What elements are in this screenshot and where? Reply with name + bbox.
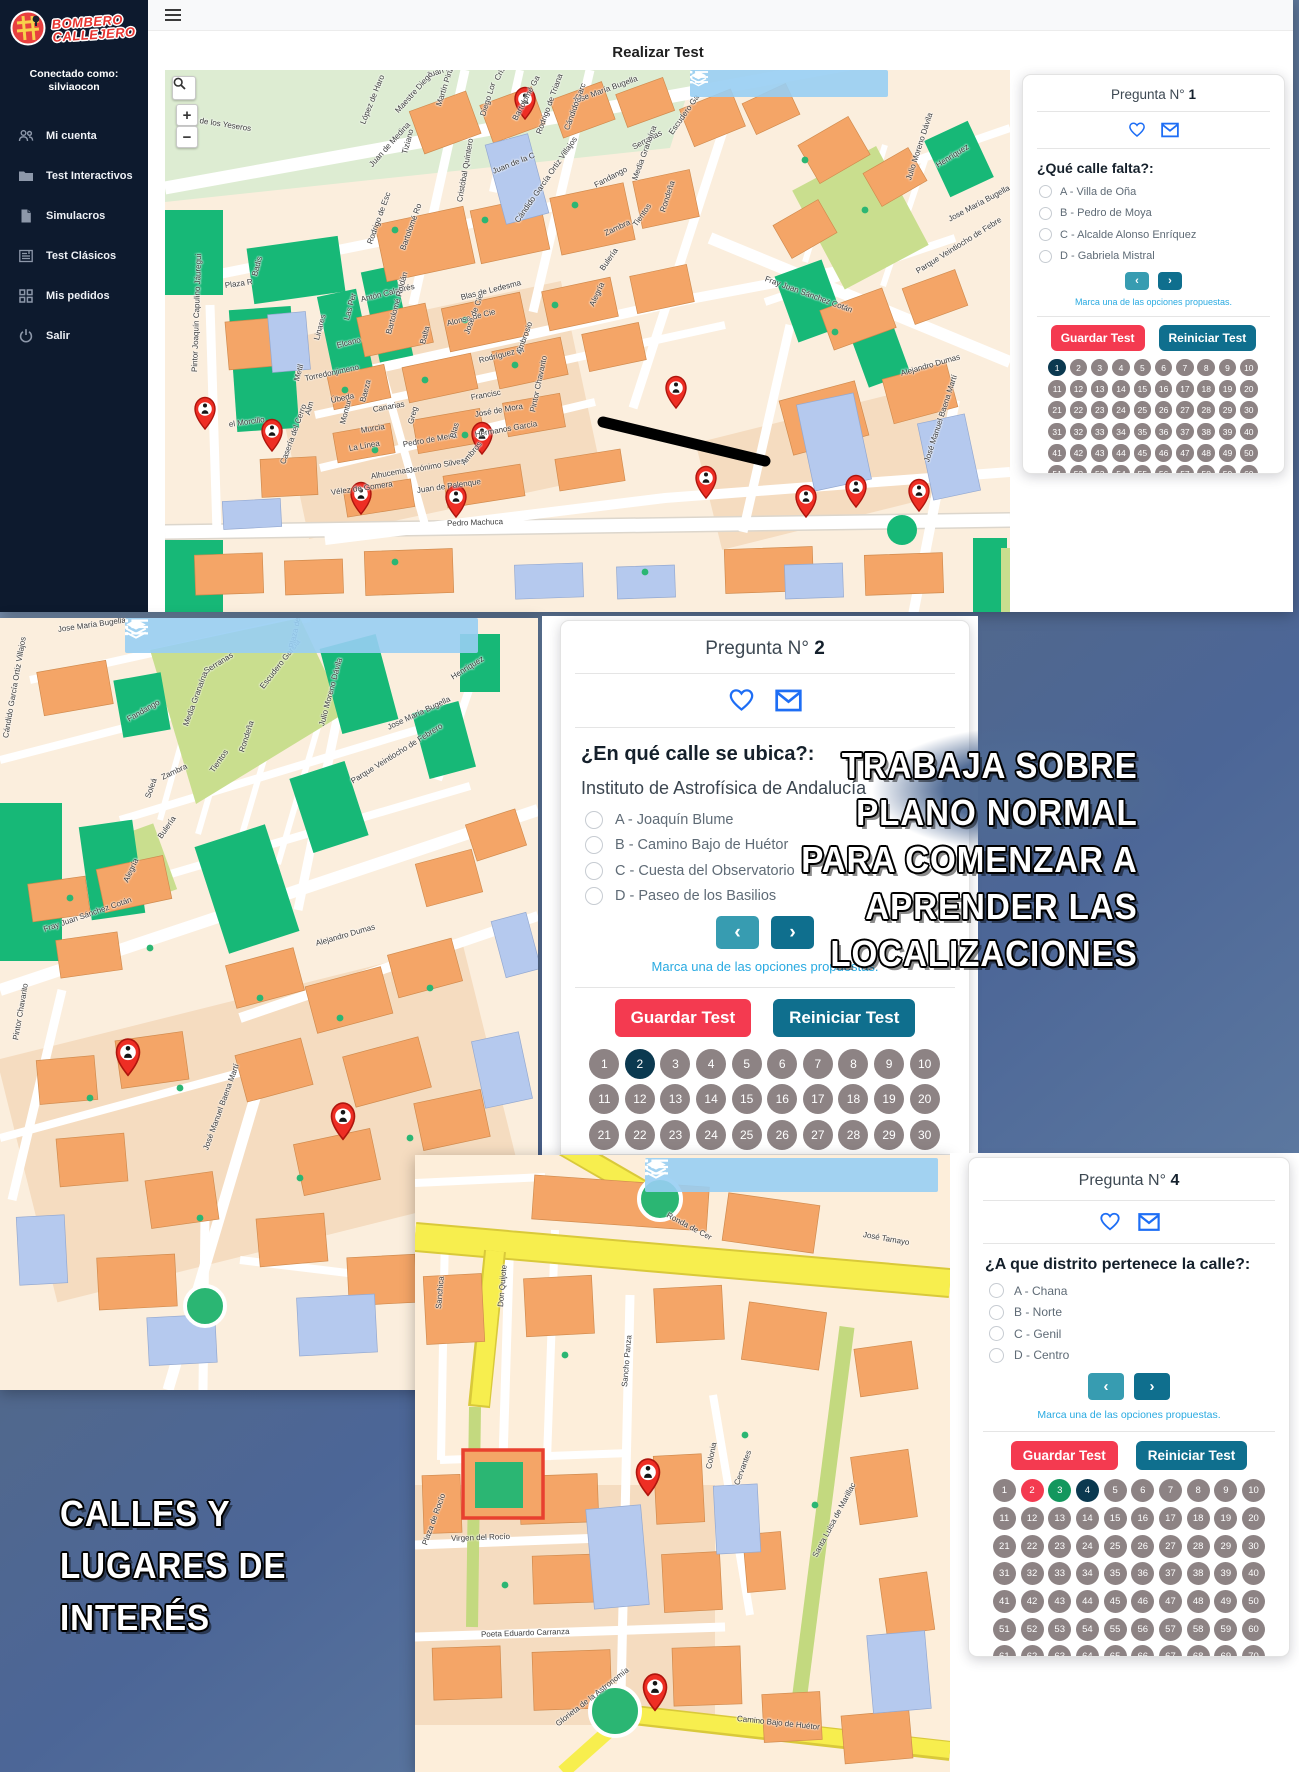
reset-test-button[interactable]: Reiniciar Test — [773, 999, 915, 1037]
save-test-button[interactable]: Guardar Test — [1051, 325, 1145, 351]
grid-question-22[interactable]: 22 — [625, 1120, 655, 1150]
question-text: ¿Qué calle falta?: — [1037, 160, 1270, 176]
mail-icon[interactable] — [1138, 1211, 1160, 1233]
username: silviaocon — [0, 81, 148, 94]
answer-option[interactable]: D - Gabriela Mistral — [1039, 246, 1284, 268]
folder-icon — [18, 168, 34, 184]
mail-icon[interactable] — [1161, 121, 1179, 139]
favorite-heart-icon[interactable] — [1128, 121, 1146, 139]
grid-question-15[interactable]: 15 — [1134, 380, 1152, 398]
grid-question-51[interactable]: 51 — [1048, 465, 1066, 474]
grid-question-7[interactable]: 7 — [1176, 359, 1194, 377]
grid-question-56[interactable]: 56 — [1155, 465, 1173, 474]
sidebar: BOMBEROCALLEJERO Conectado como: silviao… — [0, 0, 148, 612]
option-radio[interactable] — [1039, 207, 1052, 220]
roundabout — [185, 1286, 225, 1326]
grid-question-11[interactable]: 11 — [589, 1084, 619, 1114]
page-title: Realizar Test — [148, 44, 1168, 61]
grid-question-24[interactable]: 24 — [1112, 401, 1130, 419]
overlay-text-line: PARA COMENZAR A — [802, 836, 1138, 883]
sidebar-item-label: Salir — [46, 330, 70, 342]
grid-question-9[interactable]: 9 — [1219, 359, 1237, 377]
grid-question-37[interactable]: 37 — [1176, 423, 1194, 441]
users-icon — [18, 128, 34, 144]
grid-question-2[interactable]: 2 — [1021, 1479, 1044, 1502]
grid-question-21[interactable]: 21 — [1048, 401, 1066, 419]
option-label: D - Gabriela Mistral — [1060, 250, 1155, 262]
grid-question-3[interactable]: 3 — [660, 1049, 690, 1079]
grid-question-16[interactable]: 16 — [1131, 1507, 1154, 1530]
grid-question-24[interactable]: 24 — [696, 1120, 726, 1150]
grid-question-45[interactable]: 45 — [1134, 444, 1152, 462]
hamburger-icon[interactable] — [165, 9, 181, 21]
answer-option[interactable]: D - Centro — [989, 1345, 1289, 1367]
overlay-text-line: APRENDER LAS — [802, 883, 1138, 930]
grid-question-23[interactable]: 23 — [1048, 1535, 1071, 1558]
option-radio[interactable] — [1039, 250, 1052, 263]
prev-question-button[interactable]: ‹ — [716, 916, 759, 949]
option-label: D - Paseo de los Basilios — [615, 888, 776, 904]
grid-question-41[interactable]: 41 — [1048, 444, 1066, 462]
grid-question-12[interactable]: 12 — [625, 1084, 655, 1114]
grid-question-29[interactable]: 29 — [1214, 1535, 1237, 1558]
map-canvas-bottom[interactable]: Ronda de CerJosé TamayoDon QuijoteSanchi… — [415, 1155, 950, 1772]
grid-question-8[interactable]: 8 — [838, 1049, 868, 1079]
search-icon — [173, 77, 186, 90]
grid-question-70[interactable]: 70 — [1242, 1645, 1265, 1657]
grid-question-46[interactable]: 46 — [1131, 1590, 1154, 1613]
grid-question-4[interactable]: 4 — [1112, 359, 1130, 377]
prev-question-button[interactable]: ‹ — [1125, 272, 1149, 290]
zoom-in-button[interactable]: + — [176, 104, 198, 126]
option-radio[interactable] — [989, 1326, 1004, 1341]
collage-stage: Realizar Test BOMBEROCALLEJERO Conectado… — [0, 0, 1299, 1772]
grid-question-28[interactable]: 28 — [1197, 401, 1215, 419]
grid-question-26[interactable]: 26 — [1131, 1535, 1154, 1558]
sidebar-item-label: Mi cuenta — [46, 130, 97, 142]
grid-question-25[interactable]: 25 — [1134, 401, 1152, 419]
sidebar-item-label: Mis pedidos — [46, 290, 110, 302]
overlay-text-line: TRABAJA SOBRE — [802, 742, 1138, 789]
grid-question-20[interactable]: 20 — [910, 1084, 940, 1114]
options-hint: Marca una de las opciones propuestas. — [1023, 297, 1284, 307]
panel-title: Pregunta N° 2 — [561, 638, 969, 660]
grid-question-40[interactable]: 40 — [1242, 1562, 1265, 1585]
grid-question-42[interactable]: 42 — [1021, 1590, 1044, 1613]
grid-question-61[interactable]: 61 — [993, 1645, 1016, 1657]
grid-question-17[interactable]: 17 — [1176, 380, 1194, 398]
grid-question-30[interactable]: 30 — [910, 1120, 940, 1150]
grid-question-49[interactable]: 49 — [1219, 444, 1237, 462]
grid-question-47[interactable]: 47 — [1176, 444, 1194, 462]
grid-question-23[interactable]: 23 — [660, 1120, 690, 1150]
grid-question-12[interactable]: 12 — [1070, 380, 1088, 398]
sidebar-item-label: Simulacros — [46, 210, 105, 222]
grid-question-9[interactable]: 9 — [874, 1049, 904, 1079]
app-window: Realizar Test BOMBEROCALLEJERO Conectado… — [0, 0, 1293, 612]
grid-question-26[interactable]: 26 — [767, 1120, 797, 1150]
grid-question-35[interactable]: 35 — [1104, 1562, 1127, 1585]
grid-question-5[interactable]: 5 — [732, 1049, 762, 1079]
grid-question-46[interactable]: 46 — [1155, 444, 1173, 462]
option-radio[interactable] — [989, 1348, 1004, 1363]
grid-question-28[interactable]: 28 — [838, 1120, 868, 1150]
grid-question-16[interactable]: 16 — [1155, 380, 1173, 398]
grid-question-14[interactable]: 14 — [1076, 1507, 1099, 1530]
list-icon[interactable] — [125, 618, 148, 636]
grid-question-8[interactable]: 8 — [1197, 359, 1215, 377]
grid-question-54[interactable]: 54 — [1112, 465, 1130, 474]
option-label: A - Chana — [1014, 1284, 1067, 1298]
next-question-button[interactable]: › — [1134, 1373, 1170, 1400]
grid-question-47[interactable]: 47 — [1159, 1590, 1182, 1613]
grid-question-58[interactable]: 58 — [1187, 1618, 1210, 1641]
grid-question-13[interactable]: 13 — [1091, 380, 1109, 398]
grid-question-27[interactable]: 27 — [803, 1120, 833, 1150]
promo-text-right: TRABAJA SOBREPLANO NORMALPARA COMENZAR A… — [802, 742, 1138, 977]
sidebar-item-test-clásicos[interactable]: Test Clásicos — [0, 236, 148, 276]
overlay-text-line: LOCALIZACIONES — [802, 930, 1138, 977]
grid-question-7[interactable]: 7 — [1159, 1479, 1182, 1502]
grid-question-51[interactable]: 51 — [993, 1618, 1016, 1641]
option-label: C - Genil — [1014, 1327, 1061, 1341]
grid-question-52[interactable]: 52 — [1070, 465, 1088, 474]
grid-question-20[interactable]: 20 — [1242, 1507, 1265, 1530]
panel-title: Pregunta N° 4 — [969, 1172, 1289, 1190]
question-number-grid: 1234567891011121314151617181920212223242… — [991, 1477, 1268, 1657]
option-radio[interactable] — [585, 887, 603, 905]
grid-question-48[interactable]: 48 — [1197, 444, 1215, 462]
grid-question-43[interactable]: 43 — [1048, 1590, 1071, 1613]
favorite-heart-icon[interactable] — [728, 687, 755, 714]
app-logo: BOMBEROCALLEJERO — [0, 0, 148, 50]
grid-question-33[interactable]: 33 — [1048, 1562, 1071, 1585]
grid-question-69[interactable]: 69 — [1214, 1645, 1237, 1657]
sidebar-item-salir[interactable]: Salir — [0, 316, 148, 356]
grid-question-4[interactable]: 4 — [696, 1049, 726, 1079]
grid-question-7[interactable]: 7 — [803, 1049, 833, 1079]
map-canvas-top[interactable]: o de los YeserosJuan NiñoLópez de HaroMa… — [165, 70, 1010, 612]
grid-question-17[interactable]: 17 — [803, 1084, 833, 1114]
grid-question-14[interactable]: 14 — [696, 1084, 726, 1114]
grid-question-30[interactable]: 30 — [1242, 1535, 1265, 1558]
grid-question-53[interactable]: 53 — [1048, 1618, 1071, 1641]
grid-question-36[interactable]: 36 — [1131, 1562, 1154, 1585]
grid-question-33[interactable]: 33 — [1091, 423, 1109, 441]
answer-option[interactable]: C - Alcalde Alonso Enríquez — [1039, 224, 1284, 246]
overlay-text-line: PLANO NORMAL — [802, 789, 1138, 836]
app-header — [148, 0, 1293, 31]
news-icon — [18, 248, 34, 264]
grid-question-53[interactable]: 53 — [1091, 465, 1109, 474]
grid-question-42[interactable]: 42 — [1070, 444, 1088, 462]
grid-question-25[interactable]: 25 — [1104, 1535, 1127, 1558]
grid-question-40[interactable]: 40 — [1240, 423, 1258, 441]
grid-question-31[interactable]: 31 — [1048, 423, 1066, 441]
option-label: D - Centro — [1014, 1348, 1069, 1362]
sidebar-item-test-interactivos[interactable]: Test Interactivos — [0, 156, 148, 196]
grid-question-60[interactable]: 60 — [1240, 465, 1258, 474]
option-radio[interactable] — [585, 862, 603, 880]
grid-question-15[interactable]: 15 — [1104, 1507, 1127, 1530]
grid-question-17[interactable]: 17 — [1159, 1507, 1182, 1530]
grid-question-50[interactable]: 50 — [1240, 444, 1258, 462]
grid-question-56[interactable]: 56 — [1131, 1618, 1154, 1641]
grid-question-32[interactable]: 32 — [1021, 1562, 1044, 1585]
question-text: ¿A que distrito pertenece la calle?: — [985, 1256, 1273, 1274]
list-icon[interactable] — [690, 70, 708, 84]
grid-question-35[interactable]: 35 — [1134, 423, 1152, 441]
grid-question-32[interactable]: 32 — [1070, 423, 1088, 441]
grid-question-63[interactable]: 63 — [1048, 1645, 1071, 1657]
option-radio[interactable] — [1039, 228, 1052, 241]
grid-question-19[interactable]: 19 — [874, 1084, 904, 1114]
option-label: B - Pedro de Moya — [1060, 207, 1152, 219]
grid-question-6[interactable]: 6 — [1155, 359, 1173, 377]
power-icon — [18, 328, 34, 344]
grid-question-1[interactable]: 1 — [589, 1049, 619, 1079]
grid-question-55[interactable]: 55 — [1134, 465, 1152, 474]
grid-question-15[interactable]: 15 — [732, 1084, 762, 1114]
grid-question-25[interactable]: 25 — [732, 1120, 762, 1150]
grid-question-2[interactable]: 2 — [625, 1049, 655, 1079]
grid-question-67[interactable]: 67 — [1159, 1645, 1182, 1657]
grid-question-21[interactable]: 21 — [993, 1535, 1016, 1558]
overlay-text-line: INTERÉS — [60, 1592, 286, 1644]
sidebar-item-label: Test Clásicos — [46, 250, 116, 262]
panel-title: Pregunta N° 1 — [1023, 87, 1284, 102]
reset-test-button[interactable]: Reiniciar Test — [1159, 325, 1257, 351]
sidebar-menu: Mi cuentaTest InteractivosSimulacrosTest… — [0, 116, 148, 356]
grid-question-26[interactable]: 26 — [1155, 401, 1173, 419]
sidebar-item-simulacros[interactable]: Simulacros — [0, 196, 148, 236]
grid-icon — [18, 288, 34, 304]
grid-question-10[interactable]: 10 — [910, 1049, 940, 1079]
overlay-text-line: LUGARES DE — [60, 1540, 286, 1592]
map-search-button[interactable] — [172, 76, 196, 100]
map-toolbar-bottom — [645, 1158, 938, 1192]
zoom-out-button[interactable]: − — [176, 126, 198, 148]
grid-question-66[interactable]: 66 — [1131, 1645, 1154, 1657]
grid-question-8[interactable]: 8 — [1187, 1479, 1210, 1502]
grid-question-50[interactable]: 50 — [1242, 1590, 1265, 1613]
grid-question-1[interactable]: 1 — [1048, 359, 1066, 377]
mail-icon[interactable] — [775, 687, 802, 714]
grid-question-3[interactable]: 3 — [1091, 359, 1109, 377]
grid-question-36[interactable]: 36 — [1155, 423, 1173, 441]
grid-question-5[interactable]: 5 — [1134, 359, 1152, 377]
grid-question-27[interactable]: 27 — [1176, 401, 1194, 419]
option-radio[interactable] — [585, 836, 603, 854]
sidebar-item-mi-cuenta[interactable]: Mi cuenta — [0, 116, 148, 156]
sidebar-item-label: Test Interactivos — [46, 170, 133, 182]
grid-question-22[interactable]: 22 — [1021, 1535, 1044, 1558]
document-icon — [18, 208, 34, 224]
grid-question-58[interactable]: 58 — [1197, 465, 1215, 474]
grid-question-10[interactable]: 10 — [1240, 359, 1258, 377]
map-toolbar-middle — [125, 618, 478, 653]
grid-question-30[interactable]: 30 — [1240, 401, 1258, 419]
grid-question-18[interactable]: 18 — [1197, 380, 1215, 398]
grid-question-44[interactable]: 44 — [1112, 444, 1130, 462]
grid-question-10[interactable]: 10 — [1242, 1479, 1265, 1502]
answer-option[interactable]: A - Chana — [989, 1280, 1289, 1302]
logo-text: BOMBEROCALLEJERO — [51, 12, 136, 44]
option-label: B - Norte — [1014, 1305, 1062, 1319]
overlay-text-line: CALLES Y — [60, 1488, 286, 1540]
option-radio[interactable] — [989, 1283, 1004, 1298]
grid-question-38[interactable]: 38 — [1197, 423, 1215, 441]
grid-question-28[interactable]: 28 — [1187, 1535, 1210, 1558]
grid-question-52[interactable]: 52 — [1021, 1618, 1044, 1641]
grid-question-21[interactable]: 21 — [589, 1120, 619, 1150]
grid-question-64[interactable]: 64 — [1076, 1645, 1099, 1657]
list-icon[interactable] — [645, 1158, 668, 1176]
options-list: A - ChanaB - NorteC - GenilD - Centro — [969, 1280, 1289, 1366]
next-question-button[interactable]: › — [1158, 272, 1182, 290]
grid-question-5[interactable]: 5 — [1104, 1479, 1127, 1502]
grid-question-13[interactable]: 13 — [660, 1084, 690, 1114]
grid-question-57[interactable]: 57 — [1159, 1618, 1182, 1641]
question-number-grid: 1234567891011121314151617181920212223242… — [1047, 357, 1261, 474]
option-label: B - Camino Bajo de Huétor — [615, 837, 788, 853]
question-panel-1: Pregunta N° 1 ¿Qué calle falta?: A - Vil… — [1022, 74, 1285, 474]
grid-question-41[interactable]: 41 — [993, 1590, 1016, 1613]
grid-question-60[interactable]: 60 — [1242, 1618, 1265, 1641]
option-radio[interactable] — [989, 1305, 1004, 1320]
grid-question-65[interactable]: 65 — [1104, 1645, 1127, 1657]
options-hint: Marca una de las opciones propuestas. — [969, 1409, 1289, 1421]
grid-question-16[interactable]: 16 — [767, 1084, 797, 1114]
option-label: A - Villa de Oña — [1060, 186, 1136, 198]
answer-option[interactable]: C - Genil — [989, 1323, 1289, 1345]
grid-question-43[interactable]: 43 — [1091, 444, 1109, 462]
sidebar-item-mis-pedidos[interactable]: Mis pedidos — [0, 276, 148, 316]
grid-question-24[interactable]: 24 — [1076, 1535, 1099, 1558]
grid-question-62[interactable]: 62 — [1021, 1645, 1044, 1657]
grid-question-39[interactable]: 39 — [1219, 423, 1237, 441]
grid-question-59[interactable]: 59 — [1219, 465, 1237, 474]
option-label: A - Joaquín Blume — [615, 812, 734, 828]
question-panel-4: Pregunta N° 4 ¿A que distrito pertenece … — [968, 1157, 1290, 1657]
map-toolbar-top — [690, 70, 888, 97]
grid-question-3[interactable]: 3 — [1048, 1479, 1071, 1502]
grid-question-12[interactable]: 12 — [1021, 1507, 1044, 1530]
grid-question-59[interactable]: 59 — [1214, 1618, 1237, 1641]
grid-question-45[interactable]: 45 — [1104, 1590, 1127, 1613]
grid-question-1[interactable]: 1 — [993, 1479, 1016, 1502]
grid-question-55[interactable]: 55 — [1104, 1618, 1127, 1641]
grid-question-29[interactable]: 29 — [1219, 401, 1237, 419]
grid-question-31[interactable]: 31 — [993, 1562, 1016, 1585]
grid-question-49[interactable]: 49 — [1214, 1590, 1237, 1613]
grid-question-44[interactable]: 44 — [1076, 1590, 1099, 1613]
answer-option[interactable]: B - Pedro de Moya — [1039, 203, 1284, 225]
grid-question-9[interactable]: 9 — [1214, 1479, 1237, 1502]
reset-test-button[interactable]: Reiniciar Test — [1136, 1441, 1248, 1470]
promo-text-left: CALLES YLUGARES DEINTERÉS — [60, 1488, 286, 1644]
favorite-heart-icon[interactable] — [1099, 1211, 1121, 1233]
grid-question-54[interactable]: 54 — [1076, 1618, 1099, 1641]
option-radio[interactable] — [585, 811, 603, 829]
grid-question-2[interactable]: 2 — [1070, 359, 1088, 377]
grid-question-19[interactable]: 19 — [1214, 1507, 1237, 1530]
logo-map-icon — [10, 10, 46, 46]
grid-question-37[interactable]: 37 — [1159, 1562, 1182, 1585]
option-label: C - Cuesta del Observatorio — [615, 863, 795, 879]
grid-question-34[interactable]: 34 — [1112, 423, 1130, 441]
option-radio[interactable] — [1039, 185, 1052, 198]
grid-question-48[interactable]: 48 — [1187, 1590, 1210, 1613]
grid-question-13[interactable]: 13 — [1048, 1507, 1071, 1530]
save-test-button[interactable]: Guardar Test — [615, 999, 752, 1037]
grid-question-22[interactable]: 22 — [1070, 401, 1088, 419]
grid-question-23[interactable]: 23 — [1091, 401, 1109, 419]
option-label: C - Alcalde Alonso Enríquez — [1060, 229, 1196, 241]
answer-option[interactable]: A - Villa de Oña — [1039, 181, 1284, 203]
grid-question-14[interactable]: 14 — [1112, 380, 1130, 398]
grid-question-34[interactable]: 34 — [1076, 1562, 1099, 1585]
grid-question-19[interactable]: 19 — [1219, 380, 1237, 398]
save-test-button[interactable]: Guardar Test — [1011, 1441, 1118, 1470]
grid-question-20[interactable]: 20 — [1240, 380, 1258, 398]
grid-question-57[interactable]: 57 — [1176, 465, 1194, 474]
grid-question-4[interactable]: 4 — [1076, 1479, 1099, 1502]
answer-option[interactable]: B - Norte — [989, 1302, 1289, 1324]
grid-question-18[interactable]: 18 — [1187, 1507, 1210, 1530]
question-number-grid: 1234567891011121314151617181920212223242… — [587, 1046, 944, 1155]
options-list: A - Villa de OñaB - Pedro de MoyaC - Alc… — [1023, 181, 1284, 267]
connected-as: Conectado como: silviaocon — [0, 68, 148, 94]
grid-question-27[interactable]: 27 — [1159, 1535, 1182, 1558]
grid-question-11[interactable]: 11 — [1048, 380, 1066, 398]
prev-question-button[interactable]: ‹ — [1088, 1373, 1124, 1400]
grid-question-29[interactable]: 29 — [874, 1120, 904, 1150]
grid-question-38[interactable]: 38 — [1187, 1562, 1210, 1585]
grid-question-11[interactable]: 11 — [993, 1507, 1016, 1530]
grid-question-68[interactable]: 68 — [1187, 1645, 1210, 1657]
grid-question-6[interactable]: 6 — [767, 1049, 797, 1079]
grid-question-6[interactable]: 6 — [1131, 1479, 1154, 1502]
grid-question-18[interactable]: 18 — [838, 1084, 868, 1114]
grid-question-39[interactable]: 39 — [1214, 1562, 1237, 1585]
